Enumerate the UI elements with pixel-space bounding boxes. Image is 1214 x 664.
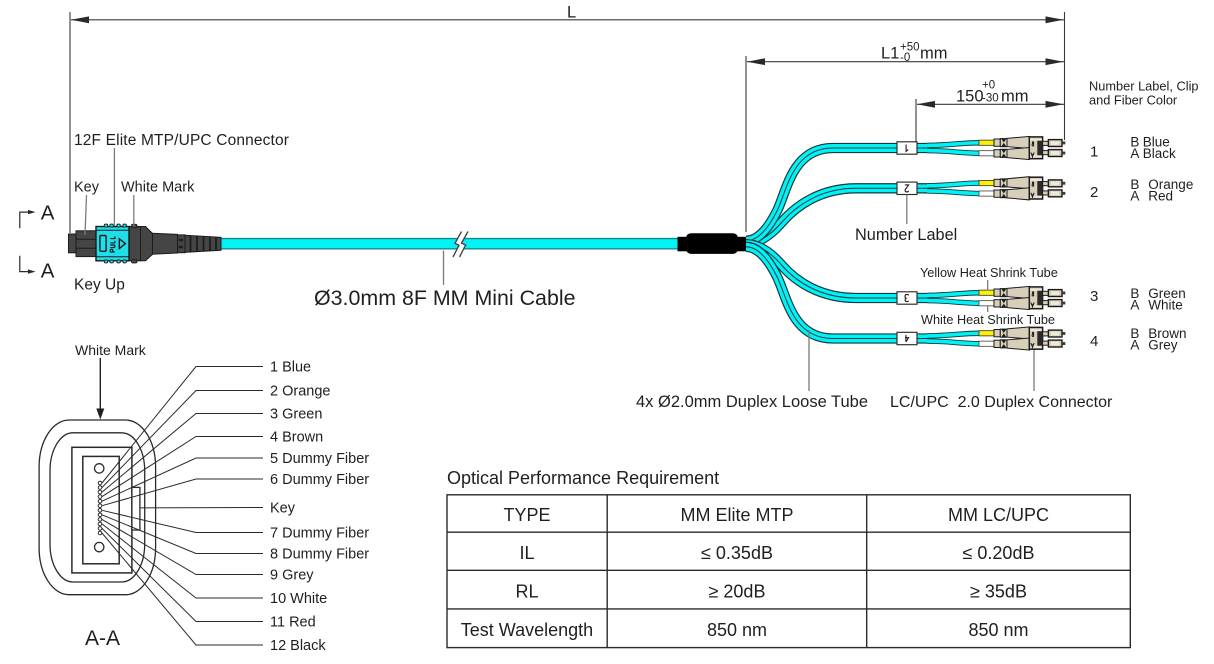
svg-text:MM Elite MTP: MM Elite MTP xyxy=(680,505,793,525)
svg-text:L1: L1 xyxy=(881,44,899,62)
svg-text:Ø3.0mm 8F MM Mini Cable: Ø3.0mm 8F MM Mini Cable xyxy=(314,286,576,310)
svg-text:4 Brown: 4 Brown xyxy=(270,430,323,446)
svg-text:11 Red: 11 Red xyxy=(270,615,316,631)
svg-text:≤ 0.20dB: ≤ 0.20dB xyxy=(963,543,1035,563)
svg-text:A: A xyxy=(1130,297,1139,312)
svg-text:150: 150 xyxy=(956,88,984,106)
svg-text:L: L xyxy=(567,4,576,22)
svg-text:4: 4 xyxy=(1090,333,1098,350)
svg-text:mm: mm xyxy=(920,44,948,62)
svg-text:Optical Performance Requiremen: Optical Performance Requirement xyxy=(447,468,719,488)
svg-text:Test Wavelength: Test Wavelength xyxy=(461,620,593,640)
svg-text:TYPE: TYPE xyxy=(503,505,550,525)
svg-text:3: 3 xyxy=(1090,288,1098,305)
svg-text:Number Label, Clip: Number Label, Clip xyxy=(1089,79,1199,94)
svg-text:7 Dummy Fiber: 7 Dummy Fiber xyxy=(270,526,369,542)
svg-text:12F Elite MTP/UPC Connector: 12F Elite MTP/UPC Connector xyxy=(74,132,289,149)
svg-text:-30: -30 xyxy=(982,93,999,105)
svg-text:White: White xyxy=(1148,297,1183,312)
svg-text:≤ 0.35dB: ≤ 0.35dB xyxy=(701,543,773,563)
svg-text:A: A xyxy=(41,202,55,225)
svg-text:5 Dummy Fiber: 5 Dummy Fiber xyxy=(270,451,369,467)
svg-text:8 Dummy Fiber: 8 Dummy Fiber xyxy=(270,547,369,563)
svg-text:Black: Black xyxy=(1143,146,1176,161)
svg-text:A: A xyxy=(1130,189,1139,204)
svg-text:Yellow Heat Shrink Tube: Yellow Heat Shrink Tube xyxy=(920,266,1058,280)
svg-text:A: A xyxy=(41,259,55,282)
svg-text:+0: +0 xyxy=(982,80,995,92)
svg-text:and Fiber Color: and Fiber Color xyxy=(1089,93,1178,108)
svg-text:Key: Key xyxy=(74,180,100,196)
svg-text:6 Dummy Fiber: 6 Dummy Fiber xyxy=(270,472,369,488)
svg-text:≥ 20dB: ≥ 20dB xyxy=(709,582,766,602)
svg-text:3 Green: 3 Green xyxy=(270,407,322,423)
svg-text:12 Black: 12 Black xyxy=(270,638,326,654)
svg-text:mm: mm xyxy=(1001,88,1029,106)
svg-text:Grey: Grey xyxy=(1148,337,1178,352)
svg-text:White Mark: White Mark xyxy=(75,342,147,358)
svg-text:Number Label: Number Label xyxy=(855,226,957,244)
svg-text:A-A: A-A xyxy=(85,627,120,650)
svg-text:2: 2 xyxy=(1090,184,1098,201)
svg-text:850 nm: 850 nm xyxy=(707,620,767,640)
svg-text:Red: Red xyxy=(1148,189,1173,204)
svg-text:2 Orange: 2 Orange xyxy=(270,384,330,400)
svg-text:IL: IL xyxy=(519,543,534,563)
svg-text:10 White: 10 White xyxy=(270,591,327,607)
svg-text:LC/UPC 2.0 Duplex Connector: LC/UPC 2.0 Duplex Connector xyxy=(890,394,1113,411)
svg-text:MM LC/UPC: MM LC/UPC xyxy=(948,505,1049,525)
svg-text:A: A xyxy=(1130,337,1139,352)
svg-text:Key: Key xyxy=(270,501,296,517)
svg-text:4x Ø2.0mm Duplex Loose Tube: 4x Ø2.0mm Duplex Loose Tube xyxy=(636,393,868,411)
svg-text:A: A xyxy=(1130,146,1139,161)
svg-text:-0: -0 xyxy=(900,52,910,64)
svg-text:9 Grey: 9 Grey xyxy=(270,568,314,584)
svg-text:Key Up: Key Up xyxy=(74,277,125,294)
svg-text:White Mark: White Mark xyxy=(121,180,195,196)
svg-text:850 nm: 850 nm xyxy=(968,620,1028,640)
svg-text:White Heat Shrink Tube: White Heat Shrink Tube xyxy=(921,313,1055,327)
svg-text:1 Blue: 1 Blue xyxy=(270,360,311,376)
svg-text:≥ 35dB: ≥ 35dB xyxy=(970,582,1027,602)
svg-text:1: 1 xyxy=(1090,143,1098,160)
svg-text:RL: RL xyxy=(515,582,538,602)
